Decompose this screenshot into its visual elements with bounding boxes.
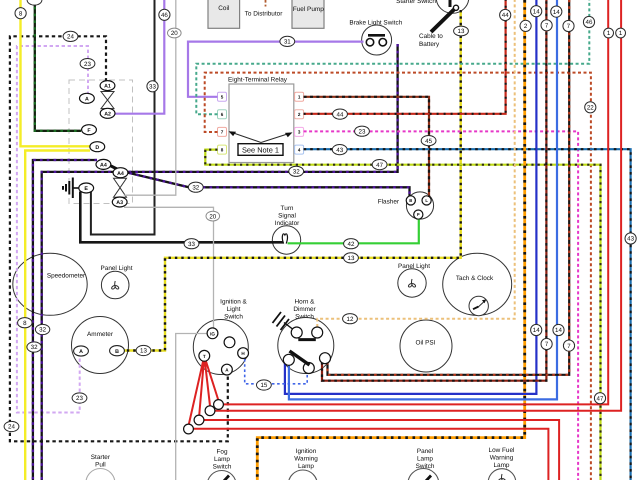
svg-text:33: 33 — [188, 241, 195, 248]
svg-text:Ignition: Ignition — [296, 448, 317, 455]
svg-text:1: 1 — [607, 30, 611, 37]
svg-text:Lamp: Lamp — [417, 456, 433, 463]
svg-text:45: 45 — [425, 138, 432, 145]
svg-text:A: A — [79, 349, 83, 355]
svg-text:Coil: Coil — [218, 5, 229, 12]
svg-text:31: 31 — [284, 39, 291, 46]
svg-text:4: 4 — [298, 147, 301, 152]
svg-text:32: 32 — [31, 344, 38, 351]
svg-text:47: 47 — [376, 162, 383, 169]
svg-text:13: 13 — [140, 348, 147, 355]
svg-text:14: 14 — [555, 327, 562, 334]
svg-text:See Note 1: See Note 1 — [242, 146, 279, 155]
svg-text:Ammeter: Ammeter — [87, 331, 114, 338]
svg-text:Starter Switch: Starter Switch — [396, 0, 436, 5]
svg-text:Switch: Switch — [213, 464, 232, 471]
svg-text:2: 2 — [524, 23, 528, 30]
svg-text:13: 13 — [458, 28, 465, 35]
svg-text:Battery: Battery — [419, 41, 440, 48]
svg-text:24: 24 — [8, 424, 15, 431]
svg-text:8: 8 — [221, 147, 224, 152]
svg-text:1: 1 — [298, 95, 301, 100]
svg-text:32: 32 — [192, 184, 199, 191]
svg-text:1: 1 — [619, 30, 623, 37]
svg-text:P: P — [417, 212, 420, 217]
svg-text:Pull: Pull — [95, 462, 106, 469]
svg-text:Lamp: Lamp — [298, 463, 314, 470]
svg-text:46: 46 — [586, 19, 593, 26]
svg-text:13: 13 — [348, 255, 355, 262]
svg-text:22: 22 — [587, 105, 594, 112]
svg-text:23: 23 — [359, 128, 366, 135]
svg-text:47: 47 — [597, 395, 604, 402]
svg-text:Tach & Clock: Tach & Clock — [456, 275, 494, 282]
svg-text:Dimmer: Dimmer — [293, 306, 316, 313]
svg-text:Horn &: Horn & — [295, 299, 316, 306]
svg-text:Warning: Warning — [294, 456, 318, 463]
svg-text:A2: A2 — [104, 111, 111, 117]
svg-text:24: 24 — [67, 34, 74, 41]
svg-text:32: 32 — [39, 327, 46, 334]
svg-text:23: 23 — [84, 61, 91, 68]
svg-text:B: B — [115, 349, 119, 355]
svg-text:44: 44 — [337, 111, 344, 118]
svg-text:7: 7 — [545, 341, 549, 348]
svg-text:T: T — [203, 354, 206, 359]
svg-text:5: 5 — [221, 95, 224, 100]
svg-text:14: 14 — [533, 8, 540, 15]
svg-text:Eight-Terminal Relay: Eight-Terminal Relay — [228, 77, 288, 84]
svg-text:20: 20 — [171, 30, 178, 37]
svg-text:Turn: Turn — [281, 205, 294, 212]
svg-text:Flasher: Flasher — [378, 199, 400, 206]
svg-text:12: 12 — [347, 316, 354, 323]
svg-text:A4: A4 — [117, 171, 124, 177]
svg-text:8: 8 — [19, 10, 23, 17]
svg-text:Ignition &: Ignition & — [220, 299, 247, 306]
svg-text:D: D — [95, 145, 99, 151]
svg-text:Panel: Panel — [417, 448, 433, 455]
svg-text:A: A — [85, 96, 89, 102]
svg-text:7: 7 — [221, 130, 224, 135]
svg-text:IG: IG — [210, 331, 215, 336]
svg-text:Signal: Signal — [278, 213, 296, 220]
svg-text:Switch: Switch — [224, 314, 243, 321]
svg-text:Light: Light — [227, 306, 241, 313]
svg-text:7: 7 — [567, 343, 571, 350]
svg-text:32: 32 — [293, 169, 300, 176]
svg-text:44: 44 — [502, 12, 509, 19]
svg-text:To Distributor: To Distributor — [245, 11, 284, 18]
svg-text:Fog: Fog — [216, 449, 227, 456]
svg-text:Lamp: Lamp — [214, 456, 230, 463]
svg-text:7: 7 — [545, 23, 549, 30]
svg-text:Lamp: Lamp — [494, 462, 510, 469]
svg-text:Oil PSI: Oil PSI — [416, 340, 436, 347]
svg-text:20: 20 — [209, 213, 216, 220]
svg-text:14: 14 — [553, 9, 560, 16]
svg-text:Low Fuel: Low Fuel — [489, 447, 515, 454]
svg-text:Speedometer: Speedometer — [47, 273, 86, 280]
svg-text:Cable to: Cable to — [419, 33, 443, 40]
svg-text:7: 7 — [567, 23, 571, 30]
svg-text:B: B — [409, 198, 412, 203]
svg-text:6: 6 — [221, 112, 224, 117]
svg-text:Fuel Pump: Fuel Pump — [293, 6, 324, 13]
svg-text:A3: A3 — [116, 200, 123, 206]
svg-text:2: 2 — [298, 112, 301, 117]
svg-text:3: 3 — [298, 130, 301, 135]
svg-text:E: E — [84, 186, 88, 192]
svg-text:A1: A1 — [104, 84, 111, 90]
svg-text:L: L — [425, 198, 428, 203]
svg-text:8: 8 — [23, 320, 27, 327]
svg-text:15: 15 — [260, 382, 267, 389]
svg-text:42: 42 — [348, 241, 355, 248]
svg-text:Starter: Starter — [91, 454, 111, 461]
svg-text:33: 33 — [149, 84, 156, 91]
svg-text:14: 14 — [533, 327, 540, 334]
svg-text:46: 46 — [161, 12, 168, 19]
svg-text:23: 23 — [76, 395, 83, 402]
svg-text:Warning: Warning — [490, 455, 514, 462]
svg-text:A4: A4 — [100, 163, 107, 169]
svg-text:43: 43 — [627, 236, 634, 243]
svg-text:43: 43 — [336, 147, 343, 154]
